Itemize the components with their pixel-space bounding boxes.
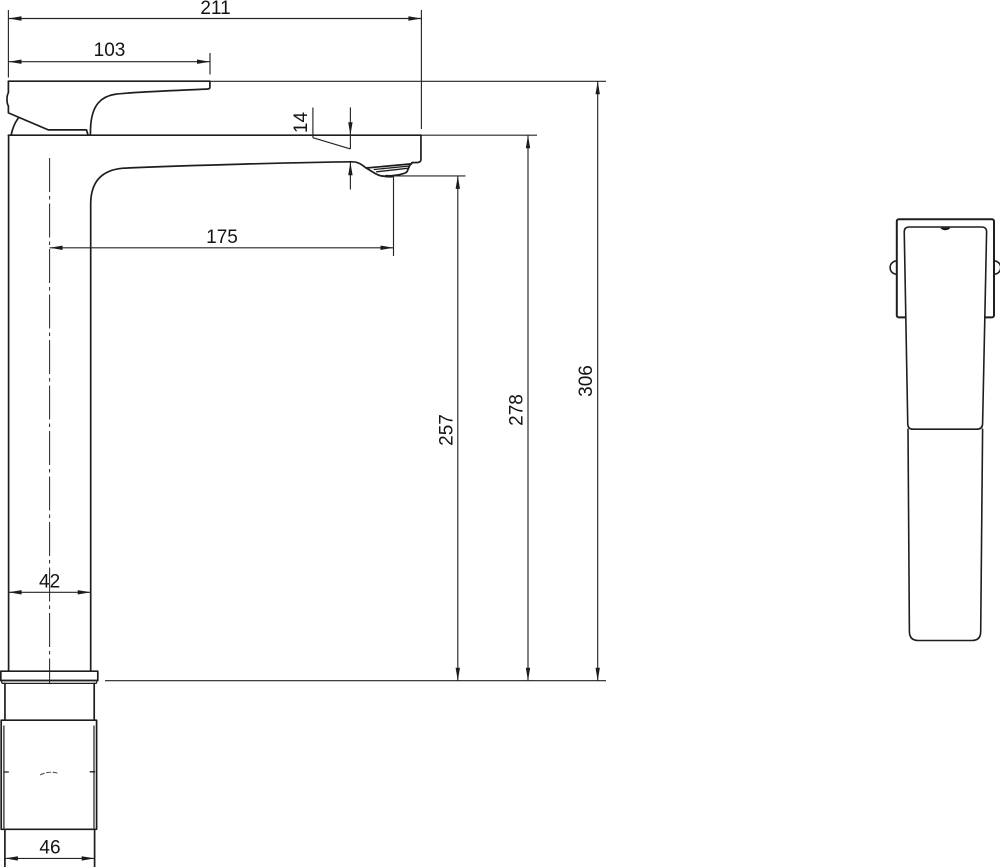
svg-text:257: 257 <box>436 414 457 446</box>
svg-text:175: 175 <box>206 227 238 248</box>
svg-text:306: 306 <box>576 365 597 397</box>
svg-text:278: 278 <box>507 394 528 426</box>
svg-text:211: 211 <box>200 0 230 19</box>
svg-text:46: 46 <box>39 838 60 859</box>
svg-text:14: 14 <box>291 112 312 134</box>
svg-text:42: 42 <box>39 572 60 593</box>
svg-text:103: 103 <box>94 40 126 61</box>
